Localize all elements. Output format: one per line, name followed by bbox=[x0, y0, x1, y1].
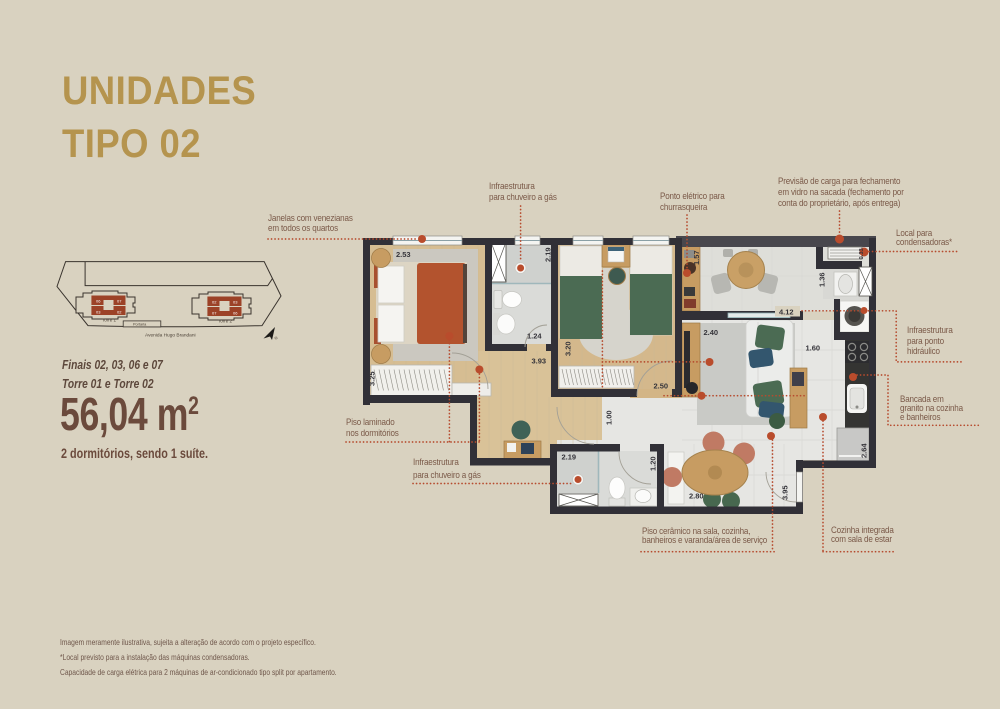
svg-text:3.25: 3.25 bbox=[368, 371, 377, 386]
svg-text:2.64: 2.64 bbox=[860, 443, 869, 458]
svg-text:3.20: 3.20 bbox=[564, 341, 573, 356]
svg-text:2.19: 2.19 bbox=[544, 247, 553, 262]
svg-text:0.33: 0.33 bbox=[859, 247, 865, 259]
svg-text:2.40: 2.40 bbox=[704, 328, 719, 337]
svg-text:1.60: 1.60 bbox=[806, 344, 821, 353]
svg-text:3.95: 3.95 bbox=[781, 485, 790, 500]
svg-text:2.80: 2.80 bbox=[689, 492, 704, 501]
svg-text:4.12: 4.12 bbox=[779, 308, 794, 317]
svg-text:3.93: 3.93 bbox=[532, 357, 547, 366]
svg-text:1.20: 1.20 bbox=[649, 456, 658, 471]
svg-text:2.50: 2.50 bbox=[654, 382, 669, 391]
svg-text:2.19: 2.19 bbox=[562, 453, 577, 462]
svg-text:1.24: 1.24 bbox=[527, 332, 542, 341]
svg-text:1.36: 1.36 bbox=[818, 272, 827, 287]
svg-text:1.57: 1.57 bbox=[692, 250, 701, 265]
svg-text:2.53: 2.53 bbox=[396, 250, 411, 259]
svg-text:1.00: 1.00 bbox=[605, 410, 614, 425]
